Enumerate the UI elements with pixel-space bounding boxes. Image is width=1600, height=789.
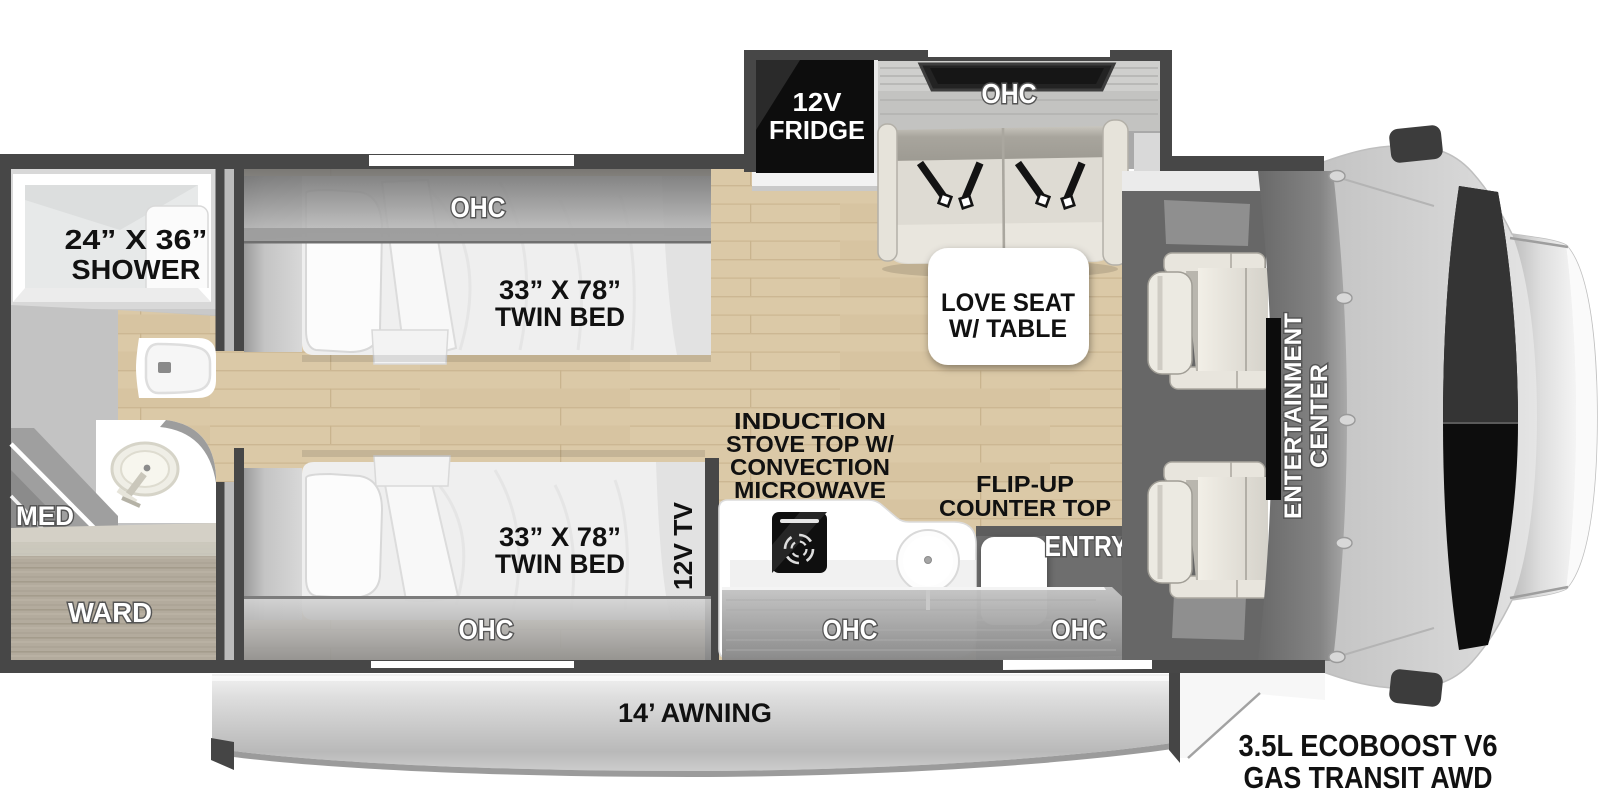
svg-text:SHOWER: SHOWER [72, 254, 201, 285]
svg-text:33” X 78”: 33” X 78” [499, 522, 621, 552]
svg-text:FLIP-UP: FLIP-UP [976, 471, 1074, 497]
svg-text:LOVE SEAT: LOVE SEAT [941, 289, 1075, 317]
svg-text:WARD: WARD [68, 597, 152, 628]
svg-text:OHC: OHC [451, 192, 506, 223]
svg-text:12V TV: 12V TV [668, 501, 698, 590]
svg-text:MICROWAVE: MICROWAVE [734, 477, 886, 503]
svg-text:ENTERTAINMENT: ENTERTAINMENT [1280, 313, 1307, 519]
svg-text:GAS TRANSIT AWD: GAS TRANSIT AWD [1244, 760, 1493, 789]
svg-text:OHC: OHC [982, 78, 1037, 109]
svg-text:CENTER: CENTER [1306, 364, 1333, 468]
svg-text:ENTRY: ENTRY [1045, 531, 1128, 563]
svg-text:12V: 12V [793, 87, 843, 117]
svg-text:24” X 36”: 24” X 36” [65, 224, 208, 255]
svg-text:FRIDGE: FRIDGE [769, 115, 865, 145]
svg-text:W/ TABLE: W/ TABLE [949, 315, 1067, 343]
svg-text:OHC: OHC [1052, 614, 1107, 645]
svg-text:MED: MED [16, 501, 74, 531]
svg-text:TWIN BED: TWIN BED [495, 549, 625, 579]
svg-text:TWIN BED: TWIN BED [495, 302, 625, 332]
svg-text:OHC: OHC [823, 614, 878, 645]
svg-text:14’ AWNING: 14’ AWNING [618, 698, 772, 728]
svg-text:3.5L ECOBOOST V6: 3.5L ECOBOOST V6 [1239, 728, 1498, 763]
svg-text:33” X 78”: 33” X 78” [499, 275, 621, 305]
svg-text:OHC: OHC [459, 614, 514, 645]
svg-text:COUNTER TOP: COUNTER TOP [939, 495, 1111, 521]
